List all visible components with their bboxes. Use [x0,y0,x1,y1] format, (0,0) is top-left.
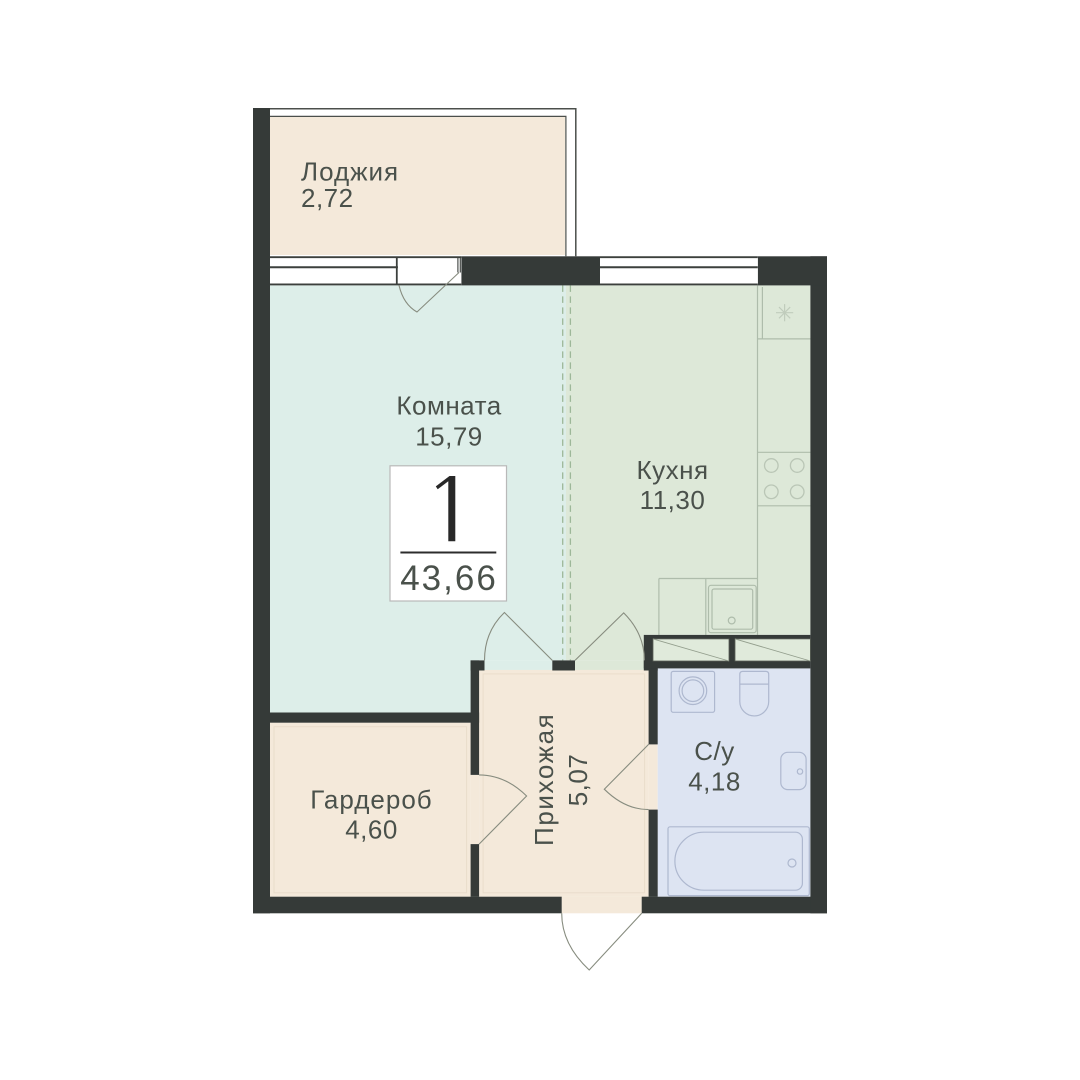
svg-text:Прихожая: Прихожая [529,713,559,846]
svg-text:С/у: С/у [694,736,735,766]
svg-text:4,18: 4,18 [688,766,741,796]
svg-text:Кухня: Кухня [636,455,708,485]
svg-text:11,30: 11,30 [640,485,706,515]
svg-text:5,07: 5,07 [563,754,593,807]
svg-text:15,79: 15,79 [415,422,483,452]
svg-text:Гардероб: Гардероб [310,785,432,815]
svg-text:4,60: 4,60 [345,815,398,845]
svg-text:Комната: Комната [396,390,501,420]
svg-text:43,66: 43,66 [400,559,498,598]
svg-text:2,72: 2,72 [301,183,354,213]
svg-text:Лоджия: Лоджия [301,157,399,187]
